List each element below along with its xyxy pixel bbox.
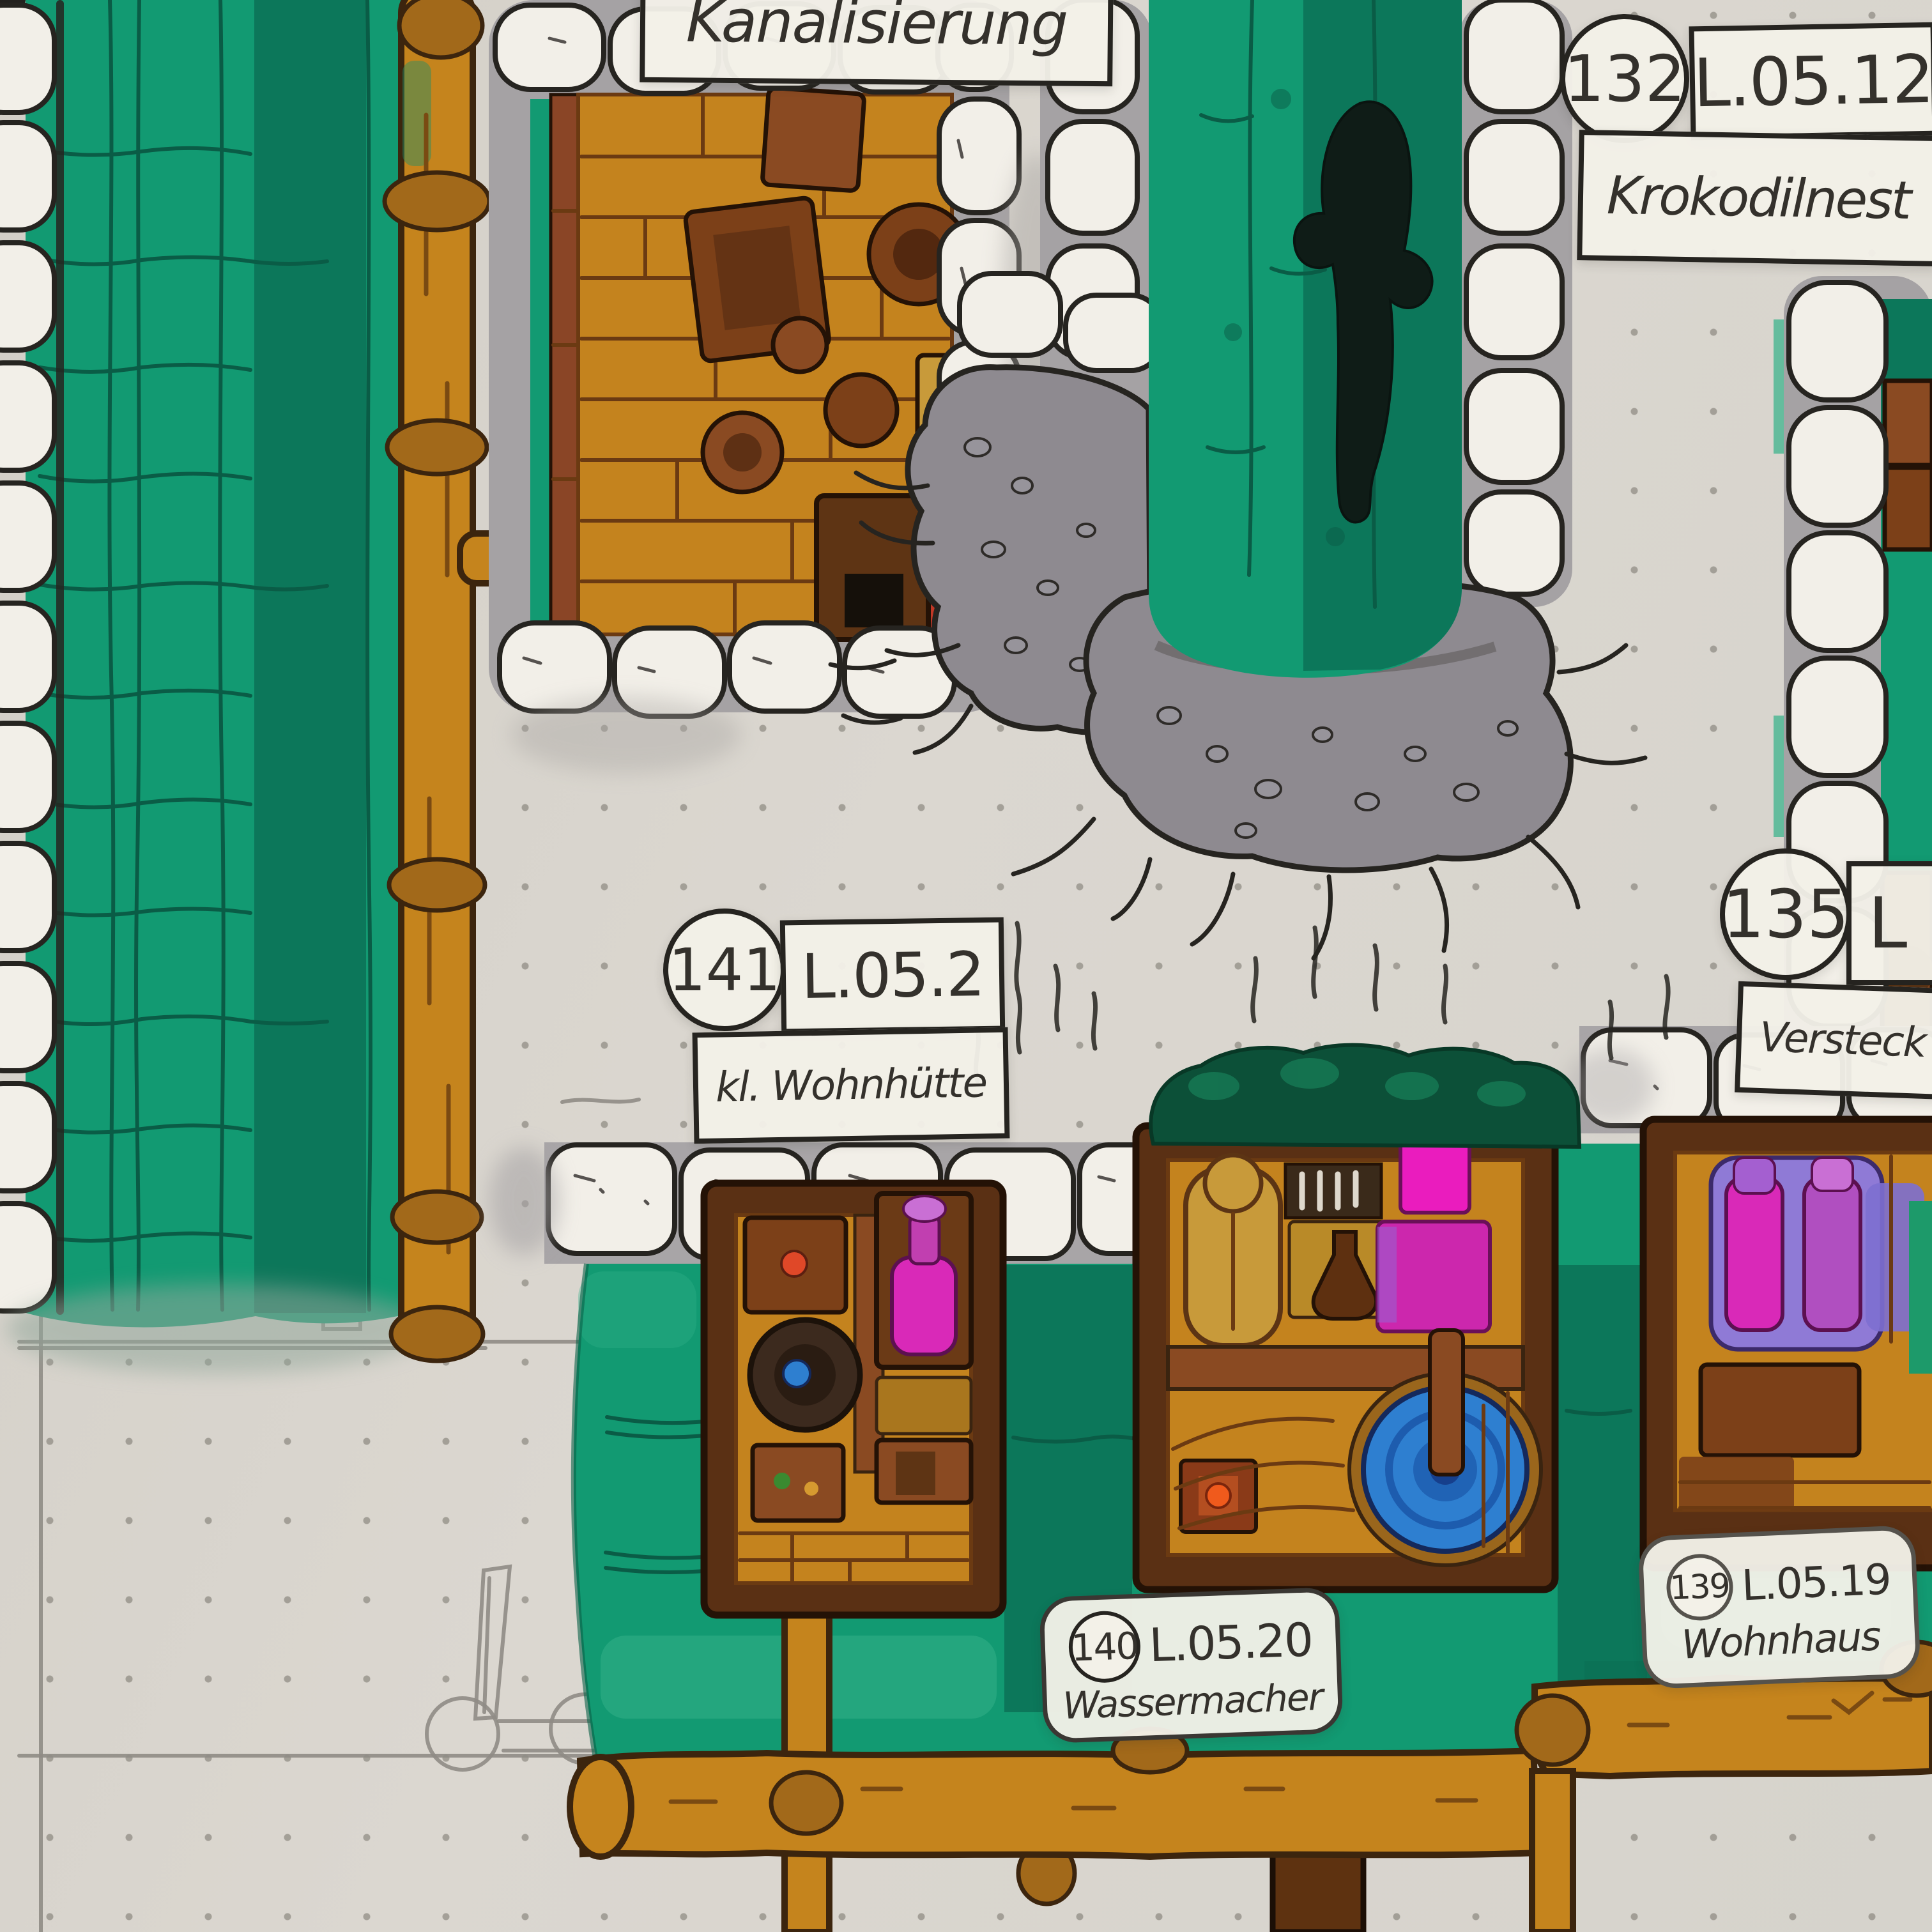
site-name-box: kl. Wohnhütte	[693, 1027, 1010, 1144]
site-number-badge: 141	[663, 908, 786, 1031]
site-number-badge: 135	[1720, 848, 1851, 980]
site-name-box: Wohnhaus	[1680, 1613, 1881, 1667]
label-storage-room: Kanalisierung	[640, 0, 1114, 86]
site-name: Krokodilnest	[1606, 165, 1910, 231]
label-kl-wohnhuette: 141 L.05.2 kl. Wohnhütte	[663, 907, 1008, 1137]
potion-bottle-icon	[1726, 1178, 1782, 1330]
crate	[762, 88, 864, 191]
potion-bottle-icon	[892, 1257, 956, 1354]
site-name-box: Wassermacher	[1062, 1675, 1322, 1727]
well-pipe	[1430, 1330, 1463, 1475]
site-name-box: Versteck	[1735, 981, 1932, 1101]
crate	[1885, 381, 1932, 465]
site-number-badge: 132	[1560, 14, 1689, 143]
site-code: L.05.19	[1740, 1554, 1891, 1610]
label-versteck: 135 L Versteck	[1720, 843, 1932, 1099]
site-number: 132	[1564, 42, 1686, 116]
label-krokodilnest: 132 L.05.12 Krokodilnest	[1560, 8, 1932, 263]
site-number: 139	[1669, 1567, 1730, 1607]
shelf	[753, 1445, 843, 1521]
ember-icon	[1206, 1483, 1230, 1508]
site-code: L.05.20	[1148, 1613, 1313, 1672]
red-gem-icon	[781, 1251, 807, 1276]
site-code: L.05.12	[1693, 40, 1932, 123]
site-number-badge: 140	[1068, 1609, 1142, 1683]
barrel	[825, 374, 897, 446]
site-name: kl. Wohnhütte	[715, 1059, 986, 1111]
magenta-box	[1400, 1141, 1469, 1213]
storage-room-name: Kanalisierung	[686, 0, 1067, 58]
site-name: Versteck	[1759, 1014, 1926, 1067]
site-number-badge: 139	[1665, 1552, 1734, 1621]
site-code: L.05.2	[801, 939, 984, 1013]
site-code: L	[1868, 882, 1906, 964]
site-name-box: Krokodilnest	[1577, 130, 1932, 266]
label-wassermacher: 140 L.05.20 Wassermacher	[1039, 1587, 1344, 1744]
stone-wall-west	[0, 5, 54, 1311]
site-code-box: L.05.12	[1689, 22, 1932, 141]
table	[1701, 1365, 1859, 1455]
site-name: Wohnhaus	[1680, 1613, 1881, 1667]
site-number: 140	[1070, 1623, 1138, 1669]
potion-bottle-icon	[1804, 1178, 1860, 1330]
label-wohnhaus: 139 L.05.19 Wohnhaus	[1637, 1525, 1921, 1690]
site-number: 135	[1722, 875, 1850, 953]
site-name: Wassermacher	[1062, 1675, 1322, 1727]
site-code-box: L	[1846, 861, 1932, 985]
hut-wohnhaus	[1643, 1119, 1932, 1568]
site-number: 141	[668, 936, 781, 1004]
site-code-box: L.05.2	[780, 917, 1005, 1034]
canal-west	[0, 0, 428, 1374]
hut-wassermacher	[1136, 1126, 1555, 1590]
hand-drawn-dungeon-map: Kanalisierung 132 L.05.12 Krokodilnest 1…	[0, 0, 1932, 1932]
crate	[1885, 468, 1932, 549]
support-pole	[1532, 1771, 1573, 1932]
deck-end-cap	[570, 1757, 631, 1857]
